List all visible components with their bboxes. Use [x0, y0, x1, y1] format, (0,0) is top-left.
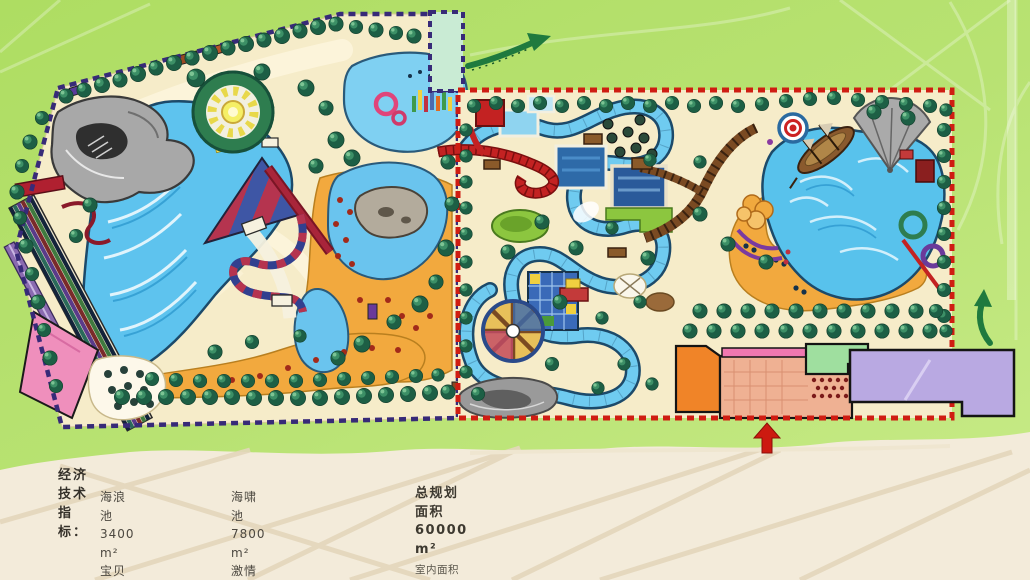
tree-icon [431, 368, 444, 381]
tree-icon [617, 357, 630, 370]
tree-icon [665, 96, 679, 110]
legend-column-3: 总规划面积 60000 m² 室内面积 30000 m² 室外面积 30000 … [415, 485, 468, 580]
tree-icon [640, 250, 655, 265]
tree-icon [112, 72, 127, 87]
tree-icon [220, 40, 235, 55]
tree-icon [310, 19, 326, 35]
tree-icon [328, 132, 345, 149]
tree-icon [884, 303, 899, 318]
tree-icon [378, 387, 394, 403]
tree-icon [187, 69, 206, 88]
tree-icon [643, 153, 656, 166]
tree-icon [193, 374, 207, 388]
tree-icon [709, 96, 723, 110]
tree-icon [459, 201, 472, 214]
tree-icon [937, 175, 951, 189]
tree-icon [344, 150, 361, 167]
tree-icon [406, 28, 421, 43]
tree-icon [238, 36, 254, 52]
tree-icon [898, 323, 913, 338]
tree-icon [202, 45, 218, 61]
indoor-pool [556, 146, 606, 188]
tree-icon [643, 99, 657, 113]
tree-icon [130, 66, 146, 82]
tree-icon [720, 236, 735, 251]
tree-icon [9, 184, 24, 199]
tree-icon [180, 389, 196, 405]
tree-icon [764, 303, 779, 318]
tree-icon [25, 267, 39, 281]
tree-icon [42, 350, 57, 365]
tree-icon [778, 323, 793, 338]
service-building [368, 304, 377, 319]
tree-icon [836, 303, 851, 318]
tree-icon [245, 335, 259, 349]
tree-icon [758, 254, 773, 269]
tree-icon [440, 154, 455, 169]
tree-icon [471, 387, 485, 401]
tree-icon [459, 311, 472, 324]
tree-icon [755, 97, 769, 111]
tree-icon [459, 175, 472, 188]
tree-icon [22, 134, 37, 149]
tree-icon [35, 111, 49, 125]
tree-icon [440, 384, 455, 399]
tree-icon [812, 303, 827, 318]
tree-icon [937, 201, 951, 215]
tree-icon [114, 389, 130, 405]
tree-icon [716, 303, 731, 318]
indicator-item: 激情大水寨/儿童池 1400 m² [231, 562, 266, 580]
tree-icon [292, 23, 307, 38]
tree-icon [58, 88, 73, 103]
tree-icon [158, 389, 174, 405]
tree-icon [939, 324, 952, 337]
tree-icon [706, 323, 721, 338]
tree-icon [459, 365, 472, 378]
tree-icon [202, 389, 218, 405]
tree-icon [645, 377, 658, 390]
tree-icon [422, 385, 438, 401]
tree-icon [224, 389, 240, 405]
tree-icon [545, 357, 559, 371]
tree-icon [15, 159, 29, 173]
tree-icon [368, 22, 383, 37]
tree-icon [826, 323, 841, 338]
tree-icon [298, 80, 315, 97]
tree-icon [591, 381, 604, 394]
tree-icon [827, 91, 841, 105]
tree-icon [318, 100, 333, 115]
tree-icon [289, 374, 303, 388]
tree-icon [293, 329, 306, 342]
tree-icon [937, 255, 951, 269]
tree-icon [184, 50, 199, 65]
entrance-buildings [676, 344, 868, 418]
tree-icon [568, 240, 583, 255]
tree-icon [692, 303, 707, 318]
tree-icon [693, 155, 706, 168]
tree-icon [37, 323, 51, 337]
mint-parcel [430, 12, 463, 91]
tree-icon [385, 370, 399, 384]
tree-icon [444, 196, 459, 211]
tree-icon [13, 211, 27, 225]
tree-icon [633, 295, 646, 308]
water-park-master-plan: 经济技术指标： 海浪池 3400 m² 宝贝水城 560 m² 中型水寨池 95… [0, 0, 1030, 580]
tree-icon [356, 388, 372, 404]
indicator-item: 宝贝水城 560 m² [100, 562, 139, 580]
tree-icon [851, 93, 865, 107]
tree-icon [386, 314, 401, 329]
tree-icon [937, 123, 951, 137]
tree-icon [923, 99, 937, 113]
tree-icon [874, 323, 889, 338]
tree-icon [274, 28, 290, 44]
tree-icon [330, 350, 345, 365]
tree-icon [337, 372, 351, 386]
tree-icon [94, 77, 110, 93]
tree-icon [459, 149, 472, 162]
tree-icon [899, 97, 913, 111]
indicator-item: 室内面积 30000 m² [415, 563, 468, 580]
tree-icon [76, 82, 91, 97]
tree-icon [428, 274, 443, 289]
play-structures [412, 90, 452, 112]
tree-icon [148, 60, 163, 75]
tree-icon [459, 283, 472, 296]
tree-icon [489, 96, 503, 110]
tree-icon [866, 104, 881, 119]
tree-icon [256, 32, 271, 47]
legend-column-2: 海啸池 7800 m² 激情大水寨/儿童池 1400 m² [231, 488, 266, 580]
legend-column-1: 海浪池 3400 m² 宝贝水城 560 m² 中型水寨池 950 m² 漂流河… [100, 488, 139, 580]
tree-icon [241, 374, 255, 388]
tree-icon [605, 221, 618, 234]
tree-icon [730, 323, 745, 338]
tree-icon [400, 386, 416, 402]
tree-icon [511, 99, 525, 113]
orange-building [676, 346, 720, 412]
tree-icon [860, 303, 875, 318]
tree-icon [731, 99, 745, 113]
tree-icon [779, 94, 793, 108]
tree-icon [599, 99, 613, 113]
tree-icon [49, 379, 63, 393]
tree-icon [803, 92, 817, 106]
tree-icon [555, 99, 569, 113]
tree-icon [412, 296, 429, 313]
tree-icon [850, 323, 865, 338]
tree-icon [595, 311, 608, 324]
tree-icon [169, 373, 183, 387]
tree-icon [459, 255, 472, 268]
tree-icon [621, 96, 635, 110]
tree-icon [82, 197, 97, 212]
tree-icon [534, 214, 549, 229]
tree-icon [30, 294, 45, 309]
tree-icon [389, 26, 403, 40]
tree-icon [18, 238, 33, 253]
tree-icon [692, 206, 707, 221]
tree-icon [361, 371, 375, 385]
tree-icon [577, 96, 591, 110]
tree-icon [459, 339, 472, 352]
tree-icon [136, 389, 152, 405]
tree-icon [265, 374, 279, 388]
tree-icon [254, 64, 271, 81]
tree-icon [922, 323, 937, 338]
tree-icon [459, 123, 472, 136]
tree-icon [459, 227, 472, 240]
tree-icon [354, 336, 371, 353]
tree-icon [308, 158, 323, 173]
sun-flower-ride [193, 72, 273, 152]
tree-icon [246, 390, 262, 406]
indicator-item: 海浪池 3400 m² [100, 488, 139, 562]
tree-icon [788, 303, 803, 318]
tree-icon [937, 227, 951, 241]
tree-icon [328, 16, 343, 31]
tree-icon [500, 244, 515, 259]
tree-icon [682, 323, 697, 338]
right-park-zone [438, 90, 1014, 418]
tree-icon [533, 96, 547, 110]
tree-icon [312, 390, 328, 406]
small-pool [500, 110, 538, 136]
tree-icon [334, 389, 350, 405]
tree-icon [409, 369, 423, 383]
indicator-item: 海啸池 7800 m² [231, 488, 266, 562]
tree-icon [217, 374, 231, 388]
tree-icon [467, 99, 481, 113]
tree-icon [937, 283, 951, 297]
legend-heading: 经济技术指标： [58, 464, 88, 540]
tree-icon [207, 344, 222, 359]
tree-icon [166, 55, 182, 71]
tree-icon [290, 390, 306, 406]
site-plan-map [0, 0, 1030, 580]
tree-icon [929, 304, 943, 318]
tree-icon [939, 103, 952, 116]
tree-icon [740, 303, 755, 318]
tree-icon [313, 373, 327, 387]
tree-icon [69, 229, 83, 243]
tree-icon [438, 240, 455, 257]
total-area: 总规划面积 60000 m² [415, 485, 468, 559]
tree-icon [145, 372, 159, 386]
tree-icon [754, 323, 769, 338]
tree-icon [937, 149, 951, 163]
pink-canopy [722, 348, 816, 357]
tree-icon [268, 390, 284, 406]
tree-icon [552, 294, 567, 309]
tree-icon [349, 20, 363, 34]
tree-icon [908, 303, 923, 318]
dirt-circle [646, 293, 674, 311]
tree-icon [802, 323, 817, 338]
tree-icon [687, 99, 701, 113]
tree-icon [900, 110, 915, 125]
